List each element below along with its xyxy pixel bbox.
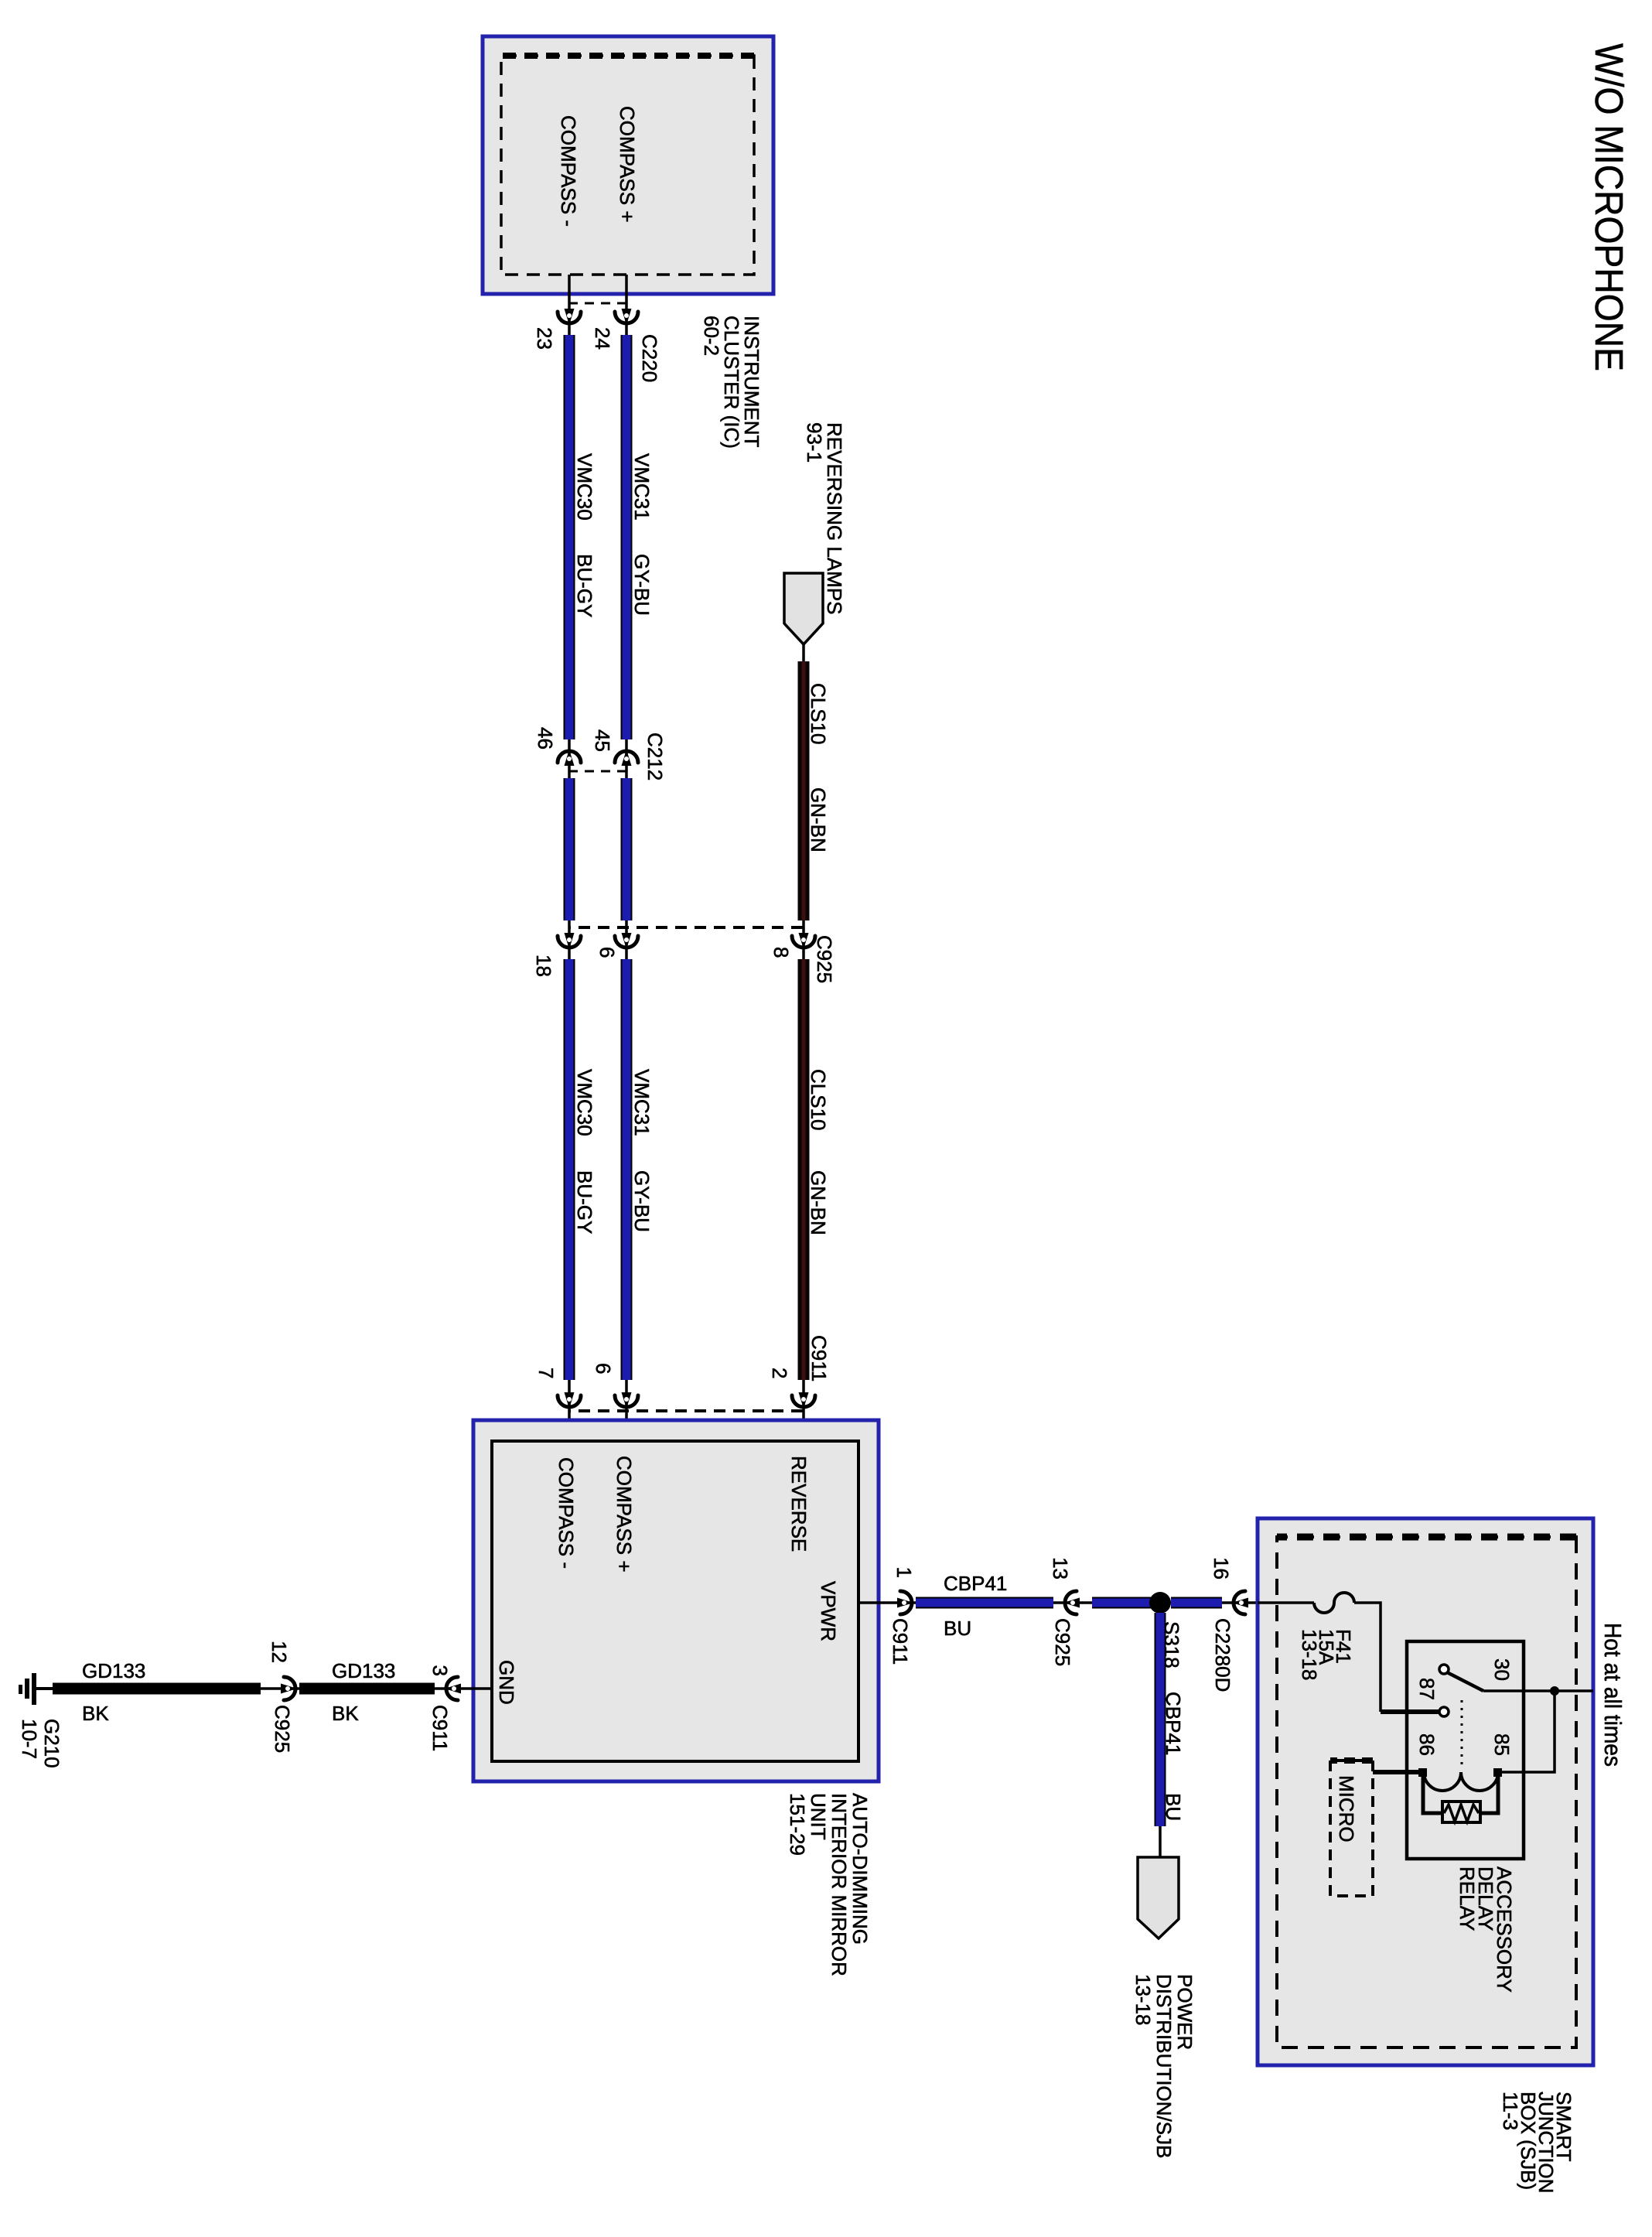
svg-text:11-3: 11-3 — [1499, 2092, 1522, 2130]
svg-text:GN-BN: GN-BN — [807, 787, 830, 852]
svg-text:CLS10: CLS10 — [807, 683, 830, 745]
svg-text:UNIT: UNIT — [807, 1793, 830, 1840]
svg-text:GD133: GD133 — [332, 1659, 395, 1682]
svg-text:INTERIOR MIRROR: INTERIOR MIRROR — [828, 1793, 851, 1976]
svg-text:BU: BU — [944, 1617, 971, 1640]
svg-text:23: 23 — [533, 327, 556, 350]
svg-text:CBP41: CBP41 — [944, 1572, 1007, 1595]
svg-text:10-7: 10-7 — [18, 1719, 41, 1759]
svg-text:13-18: 13-18 — [1298, 1629, 1321, 1681]
svg-text:30: 30 — [1490, 1658, 1514, 1681]
svg-text:BK: BK — [82, 1702, 109, 1725]
svg-text:C925: C925 — [271, 1705, 294, 1753]
svg-text:REVERSE: REVERSE — [787, 1456, 811, 1552]
svg-text:C911: C911 — [428, 1705, 452, 1751]
svg-text:C925: C925 — [1051, 1618, 1074, 1666]
svg-text:RELAY: RELAY — [1456, 1866, 1479, 1931]
svg-text:BU-GY: BU-GY — [573, 1170, 596, 1234]
svg-text:GN-BN: GN-BN — [807, 1170, 830, 1235]
svg-text:C2280D: C2280D — [1211, 1618, 1234, 1692]
svg-text:87: 87 — [1415, 1678, 1439, 1700]
svg-text:C911: C911 — [807, 1335, 831, 1381]
svg-text:6: 6 — [592, 1363, 615, 1374]
svg-text:C220: C220 — [638, 334, 661, 382]
svg-text:REVERSING LAMPS: REVERSING LAMPS — [823, 422, 846, 615]
svg-text:85: 85 — [1490, 1733, 1514, 1756]
svg-text:3: 3 — [428, 1665, 452, 1676]
svg-text:BU: BU — [1162, 1793, 1185, 1821]
svg-text:COMPASS +: COMPASS + — [616, 106, 639, 223]
svg-text:W/O MICROPHONE: W/O MICROPHONE — [1587, 43, 1631, 371]
svg-text:18: 18 — [532, 955, 555, 977]
svg-text:6: 6 — [596, 947, 619, 958]
svg-text:C925: C925 — [813, 935, 836, 983]
svg-text:BK: BK — [332, 1702, 359, 1725]
svg-text:DISTRIBUTION/SJB: DISTRIBUTION/SJB — [1152, 1974, 1176, 2158]
svg-text:POWER: POWER — [1173, 1974, 1196, 2050]
svg-text:60-2: 60-2 — [700, 316, 723, 356]
svg-text:INSTRUMENT: INSTRUMENT — [740, 316, 763, 448]
svg-text:CLS10: CLS10 — [807, 1069, 830, 1131]
svg-text:C911: C911 — [889, 1618, 912, 1665]
svg-text:GND: GND — [495, 1660, 518, 1705]
svg-text:C212: C212 — [643, 733, 667, 780]
svg-text:CLUSTER (IC): CLUSTER (IC) — [720, 316, 743, 449]
svg-text:86: 86 — [1415, 1733, 1439, 1756]
svg-text:7: 7 — [534, 1368, 558, 1378]
svg-text:1: 1 — [893, 1567, 916, 1578]
svg-text:13-18: 13-18 — [1131, 1974, 1155, 2026]
svg-text:VPWR: VPWR — [817, 1581, 840, 1641]
svg-text:12: 12 — [268, 1641, 291, 1663]
svg-text:8: 8 — [770, 947, 793, 958]
svg-text:93-1: 93-1 — [803, 422, 826, 463]
svg-text:COMPASS -: COMPASS - — [557, 115, 580, 227]
svg-text:CBP41: CBP41 — [1162, 1692, 1185, 1755]
svg-text:BU-GY: BU-GY — [573, 554, 596, 617]
svg-text:VMC30: VMC30 — [573, 1069, 596, 1136]
svg-text:45: 45 — [591, 729, 614, 752]
svg-text:13: 13 — [1049, 1557, 1072, 1580]
svg-text:24: 24 — [591, 327, 614, 350]
svg-text:AUTO-DIMMING: AUTO-DIMMING — [848, 1793, 872, 1945]
svg-text:GY-BU: GY-BU — [630, 554, 654, 616]
svg-text:MICRO: MICRO — [1335, 1775, 1358, 1843]
svg-text:46: 46 — [534, 727, 557, 750]
svg-text:16: 16 — [1210, 1557, 1233, 1580]
svg-text:GY-BU: GY-BU — [630, 1170, 654, 1232]
svg-text:2: 2 — [768, 1368, 791, 1378]
svg-text:COMPASS -: COMPASS - — [555, 1457, 578, 1569]
svg-text:GD133: GD133 — [82, 1659, 145, 1682]
svg-text:VMC31: VMC31 — [630, 1069, 654, 1136]
svg-text:COMPASS +: COMPASS + — [613, 1456, 636, 1573]
svg-text:Hot at all times: Hot at all times — [1599, 1623, 1626, 1767]
svg-text:151-29: 151-29 — [786, 1793, 809, 1856]
svg-text:VMC31: VMC31 — [630, 453, 654, 521]
svg-text:G210: G210 — [40, 1719, 63, 1768]
svg-text:VMC30: VMC30 — [573, 453, 596, 521]
